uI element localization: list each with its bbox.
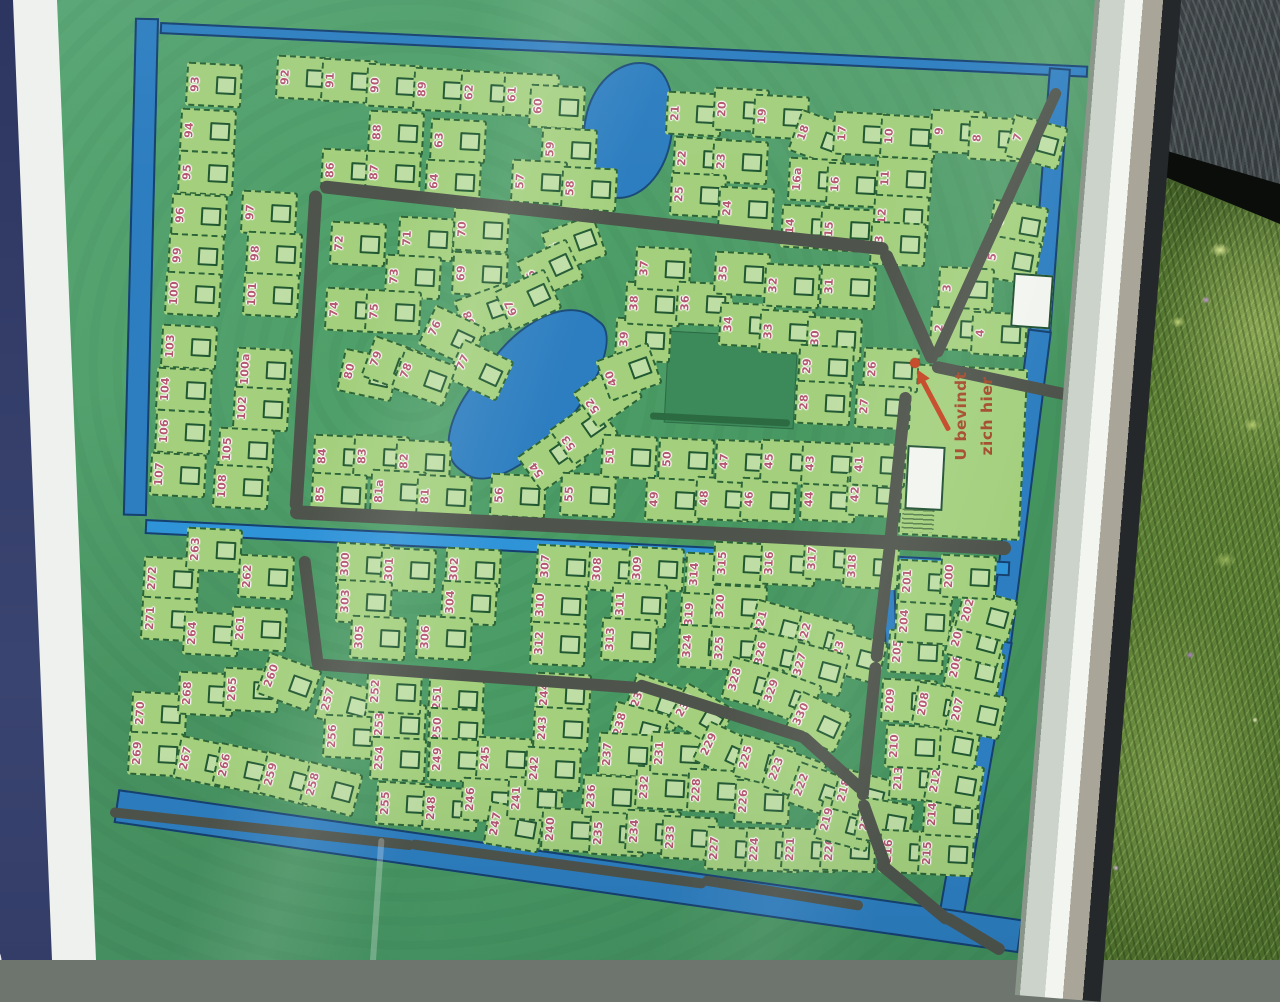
plot-number: 257 — [318, 686, 337, 712]
plot-number: 90 — [368, 77, 382, 94]
plot-number: 204 — [897, 609, 911, 634]
plot-number: 41 — [852, 456, 866, 473]
house-icon — [825, 394, 846, 413]
plot-number: 241 — [509, 786, 523, 811]
plot-number: 19 — [755, 108, 769, 125]
plot-number: 92 — [278, 69, 292, 86]
house-icon — [948, 845, 969, 864]
plot-number: 75 — [367, 303, 381, 320]
house-icon — [506, 750, 527, 769]
house-icon — [906, 170, 927, 189]
plot-number: 31 — [822, 278, 836, 295]
plot-number: 226 — [736, 789, 750, 814]
you-are-here-dot — [910, 358, 920, 368]
house-icon — [915, 738, 936, 757]
plot-number: 22 — [675, 150, 689, 167]
house-icon — [395, 303, 416, 322]
reception-building — [904, 445, 945, 511]
plot-number: 80 — [341, 362, 357, 380]
plot-number: 314 — [687, 562, 701, 587]
house-icon — [856, 176, 877, 195]
plot-number: 315 — [715, 551, 729, 576]
plot-210: 210 — [884, 724, 942, 771]
plot-number: 37 — [637, 260, 651, 277]
house-icon — [918, 643, 939, 662]
house-icon — [571, 141, 592, 160]
plot-55: 55 — [559, 472, 617, 519]
house-icon — [483, 221, 504, 240]
you-are-here-line1: U bevindt — [948, 350, 974, 482]
plot-number: 100a — [238, 353, 253, 385]
plot-number: 269 — [130, 741, 144, 766]
house-icon — [514, 818, 537, 839]
plot-number: 324 — [680, 634, 694, 659]
plot-number: 224 — [747, 837, 761, 862]
plot-number: 232 — [637, 775, 651, 800]
house-icon — [276, 245, 297, 264]
plot-number: 101 — [245, 282, 259, 307]
plot-number: 96 — [173, 207, 187, 224]
plot-number: 34 — [721, 316, 735, 333]
plot-number: 55 — [562, 486, 576, 503]
plot-number: 253 — [372, 712, 386, 737]
house-icon — [665, 779, 686, 798]
house-icon — [266, 361, 287, 380]
house-icon — [816, 715, 842, 740]
plot-number: 234 — [627, 819, 641, 844]
plot-number: 248 — [424, 796, 438, 821]
plot-number: 246 — [463, 787, 477, 812]
house-icon — [360, 235, 381, 254]
plot-number: 60 — [531, 98, 545, 115]
house-icon — [655, 295, 676, 314]
plot-number: 271 — [143, 606, 157, 631]
plot-94: 94 — [179, 108, 237, 155]
plot-number: 302 — [447, 557, 461, 582]
house-icon — [1018, 216, 1041, 237]
plot-number: 27 — [857, 398, 871, 415]
plot-number: 268 — [180, 681, 194, 706]
house-icon — [471, 594, 492, 613]
plot-number: 233 — [663, 825, 677, 850]
plot-number: 259 — [261, 761, 280, 787]
plot-number: 235 — [591, 821, 605, 846]
plot-261: 261 — [230, 606, 288, 653]
house-icon — [185, 423, 206, 442]
plot-72: 72 — [329, 221, 387, 268]
plot-number: 9 — [932, 127, 945, 136]
house-icon — [1011, 251, 1034, 272]
house-icon — [628, 746, 649, 765]
plot-101: 101 — [242, 272, 300, 319]
house-icon — [458, 690, 479, 709]
house-icon — [566, 558, 587, 577]
house-icon — [970, 568, 991, 587]
plot-51: 51 — [600, 434, 658, 481]
plot-number: 76 — [426, 318, 445, 338]
you-are-here-label: U bevindt zich hier — [948, 350, 1000, 482]
house-icon — [216, 541, 237, 560]
plot-number: 88 — [370, 124, 384, 141]
house-icon — [208, 164, 229, 183]
plot-number: 313 — [603, 627, 617, 652]
plot-number: 17 — [835, 125, 849, 142]
house-icon — [744, 265, 765, 284]
house-icon — [396, 683, 417, 702]
plot-number: 303 — [338, 589, 352, 614]
plot-number: 33 — [761, 323, 775, 340]
house-icon — [590, 486, 611, 505]
plot-number: 69 — [454, 265, 468, 282]
plot-number: 316 — [762, 551, 776, 576]
plot-number: 43 — [803, 455, 817, 472]
plot-number: 223 — [766, 755, 786, 782]
plot-100: 100 — [164, 271, 222, 318]
plot-number: 56 — [492, 487, 506, 504]
plot-number: 267 — [177, 745, 195, 771]
house-icon — [423, 369, 448, 393]
house-icon — [631, 631, 652, 650]
plot-number: 200 — [942, 564, 956, 589]
plot-number: 104 — [158, 377, 172, 402]
plot-number: 72 — [332, 235, 346, 252]
house-icon — [976, 705, 999, 727]
house-icon — [794, 277, 815, 296]
house-icon — [561, 597, 582, 616]
plot-number: 16a — [790, 167, 804, 191]
plot-number: 18 — [794, 123, 812, 142]
house-icon — [742, 153, 763, 172]
plot-number: 91 — [323, 72, 337, 89]
house-icon — [770, 491, 791, 510]
house-icon — [850, 221, 871, 240]
plot-number: 300 — [338, 552, 352, 577]
plot-number: 258 — [303, 771, 322, 797]
plot-number: 94 — [182, 122, 196, 139]
house-icon — [410, 561, 431, 580]
plot-number: 242 — [527, 756, 541, 781]
plot-number: 26 — [865, 361, 879, 378]
plot-313: 313 — [600, 617, 658, 664]
plot-number: 51 — [603, 448, 617, 465]
plot-number: 39 — [617, 331, 631, 348]
house-icon — [248, 441, 269, 460]
house-icon — [612, 788, 633, 807]
house-icon — [261, 620, 282, 639]
plot-number: 207 — [949, 696, 967, 722]
house-icon — [658, 560, 679, 579]
house-icon — [273, 286, 294, 305]
house-icon — [446, 488, 467, 507]
plot-95: 95 — [177, 150, 235, 197]
plot-number: 308 — [590, 557, 604, 582]
plot-number: 58 — [563, 180, 577, 197]
plot-number: 57 — [513, 173, 527, 190]
plot-number: 262 — [240, 564, 254, 589]
plot-number: 260 — [261, 662, 281, 689]
plot-number: 252 — [368, 679, 382, 704]
plot-102: 102 — [232, 386, 290, 433]
plot-242: 242 — [524, 746, 582, 793]
plot-number: 202 — [958, 597, 977, 623]
plot-number: 40 — [602, 369, 620, 388]
plot-number: 36 — [678, 295, 692, 312]
plot-35: 35 — [713, 251, 771, 298]
plot-number: 81a — [372, 479, 386, 503]
plot-70: 70 — [452, 207, 510, 254]
plot-254: 254 — [369, 736, 427, 783]
plot-58: 58 — [560, 166, 618, 213]
plot-number: 16 — [828, 176, 842, 193]
plot-number: 48 — [697, 490, 711, 507]
plot-number: 213 — [891, 766, 905, 791]
plot-number: 73 — [387, 268, 401, 285]
house-icon — [482, 265, 503, 284]
plot-number: 318 — [845, 554, 859, 579]
house-icon — [201, 207, 222, 226]
plot-104: 104 — [155, 367, 213, 414]
house-icon — [425, 453, 446, 472]
plot-number: 236 — [584, 784, 598, 809]
plot-number: 209 — [883, 688, 897, 713]
plot-number: 266 — [216, 752, 234, 778]
house-icon — [818, 661, 842, 684]
plot-number: 20 — [715, 101, 729, 118]
plot-number: 309 — [630, 556, 644, 581]
plot-number: 306 — [418, 625, 432, 650]
plot-number: 317 — [805, 546, 819, 571]
house-icon — [268, 568, 289, 587]
house-icon — [263, 400, 284, 419]
house-icon — [288, 674, 313, 698]
plot-63: 63 — [429, 118, 487, 165]
plot-number: 319 — [682, 602, 696, 627]
plot-108: 108 — [212, 464, 270, 511]
plot-number: 3 — [940, 284, 953, 293]
plot-number: 105 — [220, 437, 234, 462]
plot-28: 28 — [794, 380, 852, 427]
plot-number: 106 — [157, 419, 171, 444]
plot-number: 227 — [707, 836, 721, 861]
plot-number: 45 — [762, 453, 776, 470]
house-icon — [400, 716, 421, 735]
plot-number: 327 — [790, 651, 809, 677]
plot-number: 25 — [672, 186, 686, 203]
house-icon — [548, 253, 574, 278]
plot-98: 98 — [245, 231, 303, 278]
plot-number: 54 — [527, 460, 547, 480]
house-icon — [366, 593, 387, 612]
plot-number: 95 — [180, 164, 194, 181]
plot-number: 231 — [652, 741, 666, 766]
house-icon — [380, 629, 401, 648]
plot-number: 29 — [800, 358, 814, 375]
plot-97: 97 — [240, 190, 298, 237]
house-icon — [951, 735, 974, 756]
plot-number: 329 — [761, 677, 781, 704]
plot-number: 4 — [973, 329, 986, 338]
plot-204: 204 — [894, 599, 952, 646]
plot-number: 35 — [716, 265, 730, 282]
plot-number: 222 — [791, 771, 811, 798]
house-icon — [400, 750, 421, 769]
plot-number: 64 — [427, 173, 441, 190]
house-icon — [1001, 325, 1022, 344]
plot-number: 270 — [133, 701, 147, 726]
house-icon — [900, 235, 921, 254]
plot-312: 312 — [529, 621, 587, 668]
plot-number: 320 — [713, 594, 727, 619]
house-icon — [555, 760, 576, 779]
plot-number: 201 — [900, 569, 914, 594]
house-icon — [195, 285, 216, 304]
plot-number: 97 — [243, 204, 257, 221]
plot-number: 81 — [418, 488, 432, 505]
house-icon — [186, 381, 207, 400]
plot-number: 84 — [315, 448, 329, 465]
plot-number: 70 — [455, 221, 469, 238]
plot-103: 103 — [160, 324, 218, 371]
house-icon — [243, 478, 264, 497]
plot-number: 93 — [188, 76, 202, 93]
parking-hatch — [901, 507, 934, 533]
house-icon — [475, 561, 496, 580]
plot-107: 107 — [149, 452, 207, 499]
plot-306: 306 — [415, 615, 473, 662]
plot-number: 21 — [668, 105, 682, 122]
plot-number: 237 — [600, 742, 614, 767]
road — [298, 555, 324, 668]
park-name-text: galowpark de T — [0, 0, 4, 981]
plot-number: 46 — [742, 491, 756, 508]
plot-number: 108 — [215, 474, 229, 499]
house-icon — [216, 76, 237, 95]
plot-number: 312 — [532, 631, 546, 656]
house-icon — [986, 607, 1010, 630]
plot-number: 325 — [712, 636, 726, 661]
plot-number: 243 — [535, 716, 549, 741]
plot-number: 221 — [783, 837, 797, 862]
plot-number: 42 — [848, 486, 862, 503]
plot-number: 305 — [352, 625, 366, 650]
house-icon — [641, 596, 662, 615]
plot-number: 83 — [355, 448, 369, 465]
house-icon — [850, 278, 871, 297]
plot-number: 225 — [736, 744, 755, 770]
house-icon — [910, 128, 931, 147]
plot-number: 208 — [915, 691, 932, 717]
house-icon — [331, 781, 355, 804]
house-icon — [560, 635, 581, 654]
plot-number: 50 — [660, 451, 674, 468]
house-icon — [764, 793, 785, 812]
plot-number: 245 — [478, 746, 492, 771]
house-icon — [628, 356, 653, 380]
house-icon — [341, 486, 362, 505]
plot-number: 240 — [543, 817, 557, 842]
plot-32: 32 — [763, 263, 821, 310]
house-icon — [173, 570, 194, 589]
plot-number: 52 — [583, 396, 603, 416]
house-icon — [526, 283, 552, 308]
plot-number: 311 — [613, 592, 627, 617]
plot-number: 214 — [925, 802, 939, 827]
plot-number: 62 — [462, 84, 476, 101]
plot-258: 258 — [298, 761, 363, 818]
house-icon — [665, 260, 686, 279]
plot-number: 263 — [188, 537, 202, 562]
house-icon — [591, 180, 612, 199]
plot-31: 31 — [819, 264, 877, 311]
house-icon — [428, 230, 449, 249]
plot-number: 100 — [167, 281, 181, 306]
plot-57: 57 — [510, 159, 568, 206]
plot-number: 304 — [443, 590, 457, 615]
plot-60: 60 — [528, 84, 586, 131]
house-icon — [455, 173, 476, 192]
plot-number: 11 — [878, 170, 892, 187]
plot-number: 7 — [1010, 132, 1025, 143]
house-icon — [478, 363, 504, 388]
house-icon — [563, 720, 584, 739]
plot-number: 254 — [372, 746, 386, 771]
house-icon — [954, 775, 977, 796]
house-icon — [198, 247, 219, 266]
plot-number: 63 — [432, 132, 446, 149]
plot-number: 212 — [927, 768, 944, 794]
plot-number: 47 — [717, 453, 731, 470]
plot-10: 10 — [879, 114, 937, 161]
building-outline — [1010, 273, 1054, 330]
plot-number: 44 — [802, 491, 816, 508]
plot-number: 102 — [235, 396, 249, 421]
house-icon — [559, 98, 580, 117]
house-icon — [398, 124, 419, 143]
plot-number: 89 — [415, 81, 429, 98]
plot-93: 93 — [185, 62, 243, 109]
plot-number: 28 — [797, 394, 811, 411]
plot-number: 24 — [720, 200, 734, 217]
plot-number: 74 — [327, 301, 341, 318]
plot-number: 82 — [397, 453, 411, 470]
plot-number: 98 — [248, 245, 262, 262]
plot-number: 107 — [152, 462, 166, 487]
plot-number: 264 — [185, 621, 199, 646]
plot-263: 263 — [185, 527, 243, 574]
plot-number: 85 — [313, 486, 327, 503]
plot-number: 210 — [887, 734, 901, 759]
house-icon — [688, 451, 709, 470]
house-icon — [180, 466, 201, 485]
house-icon — [520, 487, 541, 506]
plot-number: 247 — [487, 811, 504, 837]
house-icon — [415, 268, 436, 287]
plot-number: 307 — [538, 554, 552, 579]
plot-number: 255 — [378, 791, 392, 816]
plot-number: 328 — [725, 666, 744, 692]
plot-number: 59 — [543, 141, 557, 158]
plot-number: 49 — [647, 491, 661, 508]
house-icon — [460, 132, 481, 151]
plot-number: 301 — [382, 557, 396, 582]
plot-number: 256 — [325, 724, 339, 749]
house-icon — [446, 629, 467, 648]
plot-number: 67 — [502, 298, 521, 318]
house-icon — [748, 200, 769, 219]
plot-200: 200 — [939, 554, 997, 601]
plot-number: 38 — [627, 295, 641, 312]
plot-number: 249 — [430, 747, 444, 772]
